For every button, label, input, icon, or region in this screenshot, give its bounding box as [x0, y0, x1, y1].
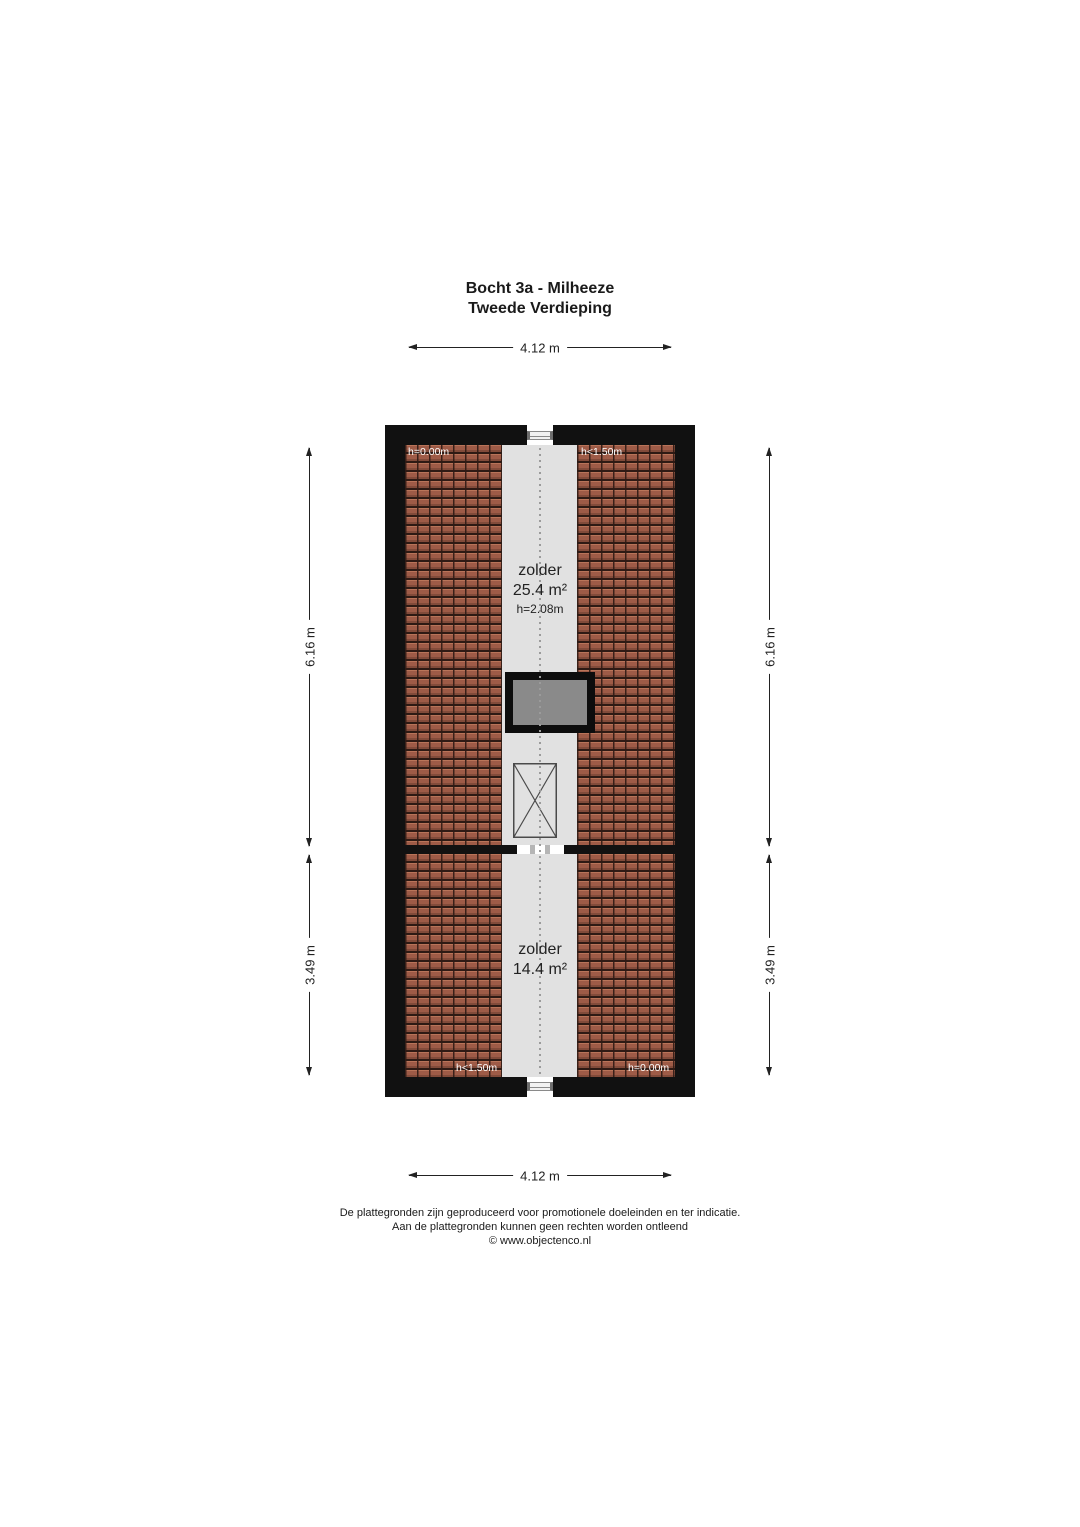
room-label-upper: zolder 25.4 m² h=2.08m — [502, 561, 578, 617]
roof-slope-lower-right — [577, 854, 675, 1077]
window-glass-line — [530, 436, 550, 437]
arrow-up-icon — [306, 854, 312, 863]
room-name: zolder — [502, 561, 578, 581]
disclaimer-line-1: De plattegronden zijn geproduceerd voor … — [0, 1206, 1080, 1220]
dimension-label: 6.16 m — [303, 620, 318, 674]
arrow-left-icon — [408, 1172, 417, 1178]
page-title: Bocht 3a - Milheeze Tweede Verdieping — [0, 279, 1080, 319]
dimension-right-lower: 3.49 m — [763, 854, 777, 1076]
height-annotation-top-left: h=0.00m — [408, 446, 449, 458]
dimension-top-width: 4.12 m — [408, 341, 672, 355]
window-opening-top — [527, 425, 553, 445]
copyright-line: © www.objectenco.nl — [0, 1234, 1080, 1248]
dimension-right-upper: 6.16 m — [763, 447, 777, 847]
room-area: 25.4 m² — [502, 581, 578, 601]
arrow-down-icon — [306, 838, 312, 847]
room-name: zolder — [502, 940, 578, 960]
dimension-label: 4.12 m — [513, 341, 567, 356]
arrow-right-icon — [663, 1172, 672, 1178]
window-icon — [527, 431, 553, 440]
door-tick — [530, 845, 535, 854]
dimension-label: 3.49 m — [763, 938, 778, 992]
height-annotation-bottom-left: h<1.50m — [456, 1062, 497, 1074]
room-area: 14.4 m² — [502, 960, 578, 980]
dimension-label: 6.16 m — [763, 620, 778, 674]
chimney — [505, 672, 595, 733]
window-glass-line — [530, 1087, 550, 1088]
roof-ridge-line — [539, 448, 541, 1077]
room-label-lower: zolder 14.4 m² — [502, 940, 578, 980]
roof-slope-upper-right — [577, 445, 675, 845]
arrow-down-icon — [306, 1067, 312, 1076]
arrow-down-icon — [766, 1067, 772, 1076]
disclaimer-line-2: Aan de plattegronden kunnen geen rechten… — [0, 1220, 1080, 1234]
arrow-right-icon — [663, 344, 672, 350]
window-opening-bottom — [527, 1077, 553, 1097]
floorplan-page: Bocht 3a - Milheeze Tweede Verdieping 4.… — [0, 0, 1080, 1527]
dimension-label: 3.49 m — [303, 938, 318, 992]
arrow-up-icon — [306, 447, 312, 456]
roof-slope-lower-left — [405, 854, 502, 1077]
dimension-label: 4.12 m — [513, 1169, 567, 1184]
building-outline: h=0.00m h<1.50m h<1.50m h=0.00m zolder 2… — [385, 425, 695, 1097]
roof-slope-upper-left — [405, 445, 502, 845]
height-annotation-bottom-right: h=0.00m — [628, 1062, 669, 1074]
door-tick — [545, 845, 550, 854]
address-title: Bocht 3a - Milheeze — [0, 279, 1080, 299]
floor-subtitle: Tweede Verdieping — [0, 299, 1080, 319]
disclaimer: De plattegronden zijn geproduceerd voor … — [0, 1206, 1080, 1248]
dimension-left-lower: 3.49 m — [303, 854, 317, 1076]
height-annotation-top-right: h<1.50m — [581, 446, 622, 458]
dimension-left-upper: 6.16 m — [303, 447, 317, 847]
arrow-up-icon — [766, 854, 772, 863]
room-ceiling-height: h=2.08m — [502, 601, 578, 617]
stairwell-icon — [513, 763, 557, 838]
arrow-up-icon — [766, 447, 772, 456]
arrow-down-icon — [766, 838, 772, 847]
arrow-left-icon — [408, 344, 417, 350]
window-icon — [527, 1082, 553, 1091]
dimension-bottom-width: 4.12 m — [408, 1169, 672, 1183]
